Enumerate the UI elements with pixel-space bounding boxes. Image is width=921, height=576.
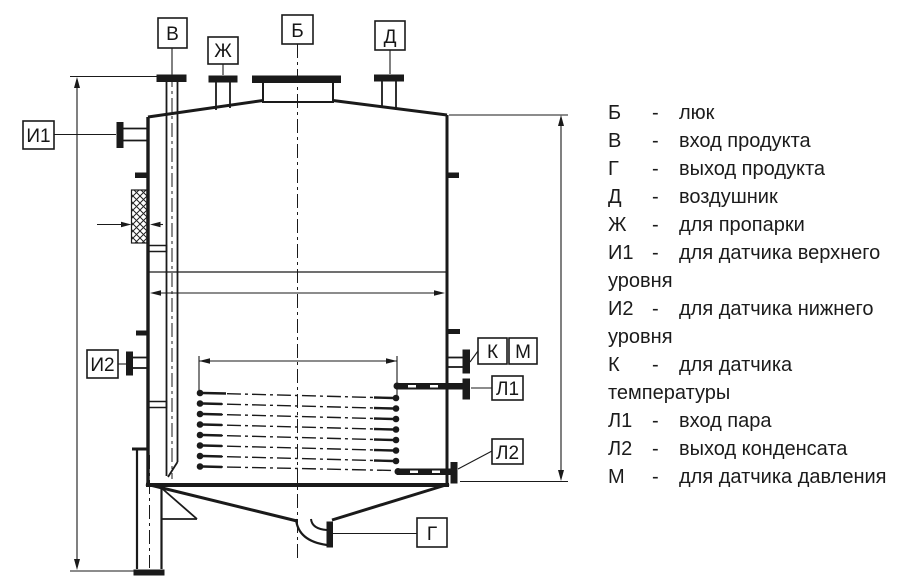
legend-text: температуры: [608, 379, 920, 407]
legend-dash: -: [652, 127, 679, 155]
bottom-outlet-g: [296, 519, 333, 548]
legend-text: вход пара: [679, 407, 920, 435]
legend-code: Г: [608, 155, 652, 183]
legend-code: И2: [608, 295, 652, 323]
legend-dash: -: [652, 155, 679, 183]
legend-code: В: [608, 127, 652, 155]
legend-text: для датчика нижнего: [679, 295, 920, 323]
callout-leaders: [54, 48, 492, 534]
legend-row-v: В-вход продукта: [608, 127, 920, 155]
legend-row-d: Д-воздушник: [608, 183, 920, 211]
legend-text: уровня: [608, 267, 920, 295]
callout-zh: Ж: [208, 37, 238, 64]
legend-code: Ж: [608, 211, 652, 239]
legend-row-i2-cont: уровня: [608, 323, 920, 351]
legend-dash: -: [652, 183, 679, 211]
legend-row-b: Б-люк: [608, 99, 920, 127]
legend-row-l1: Л1-вход пара: [608, 407, 920, 435]
callout-boxes: В Ж Б Д И1 И2 К М: [23, 15, 537, 547]
legend-row-l2: Л2-выход конденсата: [608, 435, 920, 463]
legend-code: И1: [608, 239, 652, 267]
legend-row-i1: И1-для датчика верхнего: [608, 239, 920, 267]
callout-k: К: [478, 338, 507, 364]
shell-height-dimension: [449, 115, 568, 482]
legend-text: уровня: [608, 323, 920, 351]
level-sensor-pad: [97, 190, 163, 243]
callout-l1: Л1: [492, 376, 523, 400]
legend-row-g: Г-выход продукта: [608, 155, 920, 183]
legend-text: выход продукта: [679, 155, 920, 183]
nozzle-i1: [117, 122, 149, 148]
legend-text: выход конденсата: [679, 435, 920, 463]
callout-g: Г: [417, 518, 447, 547]
legend-row-i2: И2-для датчика нижнего: [608, 295, 920, 323]
callout-i1: И1: [23, 121, 54, 149]
legend-dash: -: [652, 407, 679, 435]
callout-g-label: Г: [427, 524, 437, 545]
nozzle-k-m: [447, 350, 470, 374]
callout-l2-label: Л2: [496, 443, 519, 464]
legend-code: Б: [608, 99, 652, 127]
legend-row-zh: Ж-для пропарки: [608, 211, 920, 239]
callout-d: Д: [375, 21, 405, 50]
dip-tube-brackets: [148, 246, 167, 408]
callout-m: М: [509, 338, 537, 364]
legend-row-k: К-для датчика: [608, 351, 920, 379]
legend-dash: -: [652, 295, 679, 323]
callout-i2: И2: [87, 350, 118, 378]
legend-dash: -: [652, 463, 679, 491]
legend-text: люк: [679, 99, 920, 127]
callout-l2: Л2: [492, 439, 523, 464]
legend-text: вход продукта: [679, 127, 920, 155]
legend-code: М: [608, 463, 652, 491]
legend-text: для датчика: [679, 351, 920, 379]
nozzle-d: [374, 75, 404, 111]
legend-dash: -: [652, 99, 679, 127]
legend-text: для пропарки: [679, 211, 920, 239]
legend-text: воздушник: [679, 183, 920, 211]
legend-dash: -: [652, 351, 679, 379]
support-leg: [132, 449, 197, 576]
callout-d-label: Д: [384, 27, 397, 48]
callout-b-label: Б: [291, 21, 303, 42]
legend-dash: -: [652, 435, 679, 463]
legend-text: для датчика верхнего: [679, 239, 920, 267]
legend: Б-люк В-вход продукта Г-выход продукта Д…: [608, 99, 920, 491]
legend-dash: -: [652, 239, 679, 267]
scanned-vessel-drawing: В Ж Б Д И1 И2 К М: [0, 0, 921, 576]
callout-v-label: В: [166, 24, 179, 45]
legend-row-k-cont: температуры: [608, 379, 920, 407]
callout-k-label: К: [487, 342, 498, 363]
callout-b: Б: [282, 15, 313, 44]
manhole-b-nozzle: [252, 76, 341, 103]
legend-row-i1-cont: уровня: [608, 267, 920, 295]
callout-m-label: М: [515, 342, 531, 363]
legend-text: для датчика давления: [679, 463, 920, 491]
nozzle-i2: [126, 352, 148, 376]
legend-code: Л1: [608, 407, 652, 435]
callout-i1-label: И1: [26, 126, 50, 147]
legend-code: Л2: [608, 435, 652, 463]
legend-code: Д: [608, 183, 652, 211]
callout-i2-label: И2: [90, 355, 114, 376]
legend-dash: -: [652, 211, 679, 239]
callout-l1-label: Л1: [496, 379, 519, 400]
nozzle-l1: [394, 379, 471, 400]
legend-row-m: М-для датчика давления: [608, 463, 920, 491]
overall-height-dimension: [70, 77, 157, 572]
callout-v: В: [158, 18, 187, 48]
legend-code: К: [608, 351, 652, 379]
callout-zh-label: Ж: [214, 41, 232, 62]
